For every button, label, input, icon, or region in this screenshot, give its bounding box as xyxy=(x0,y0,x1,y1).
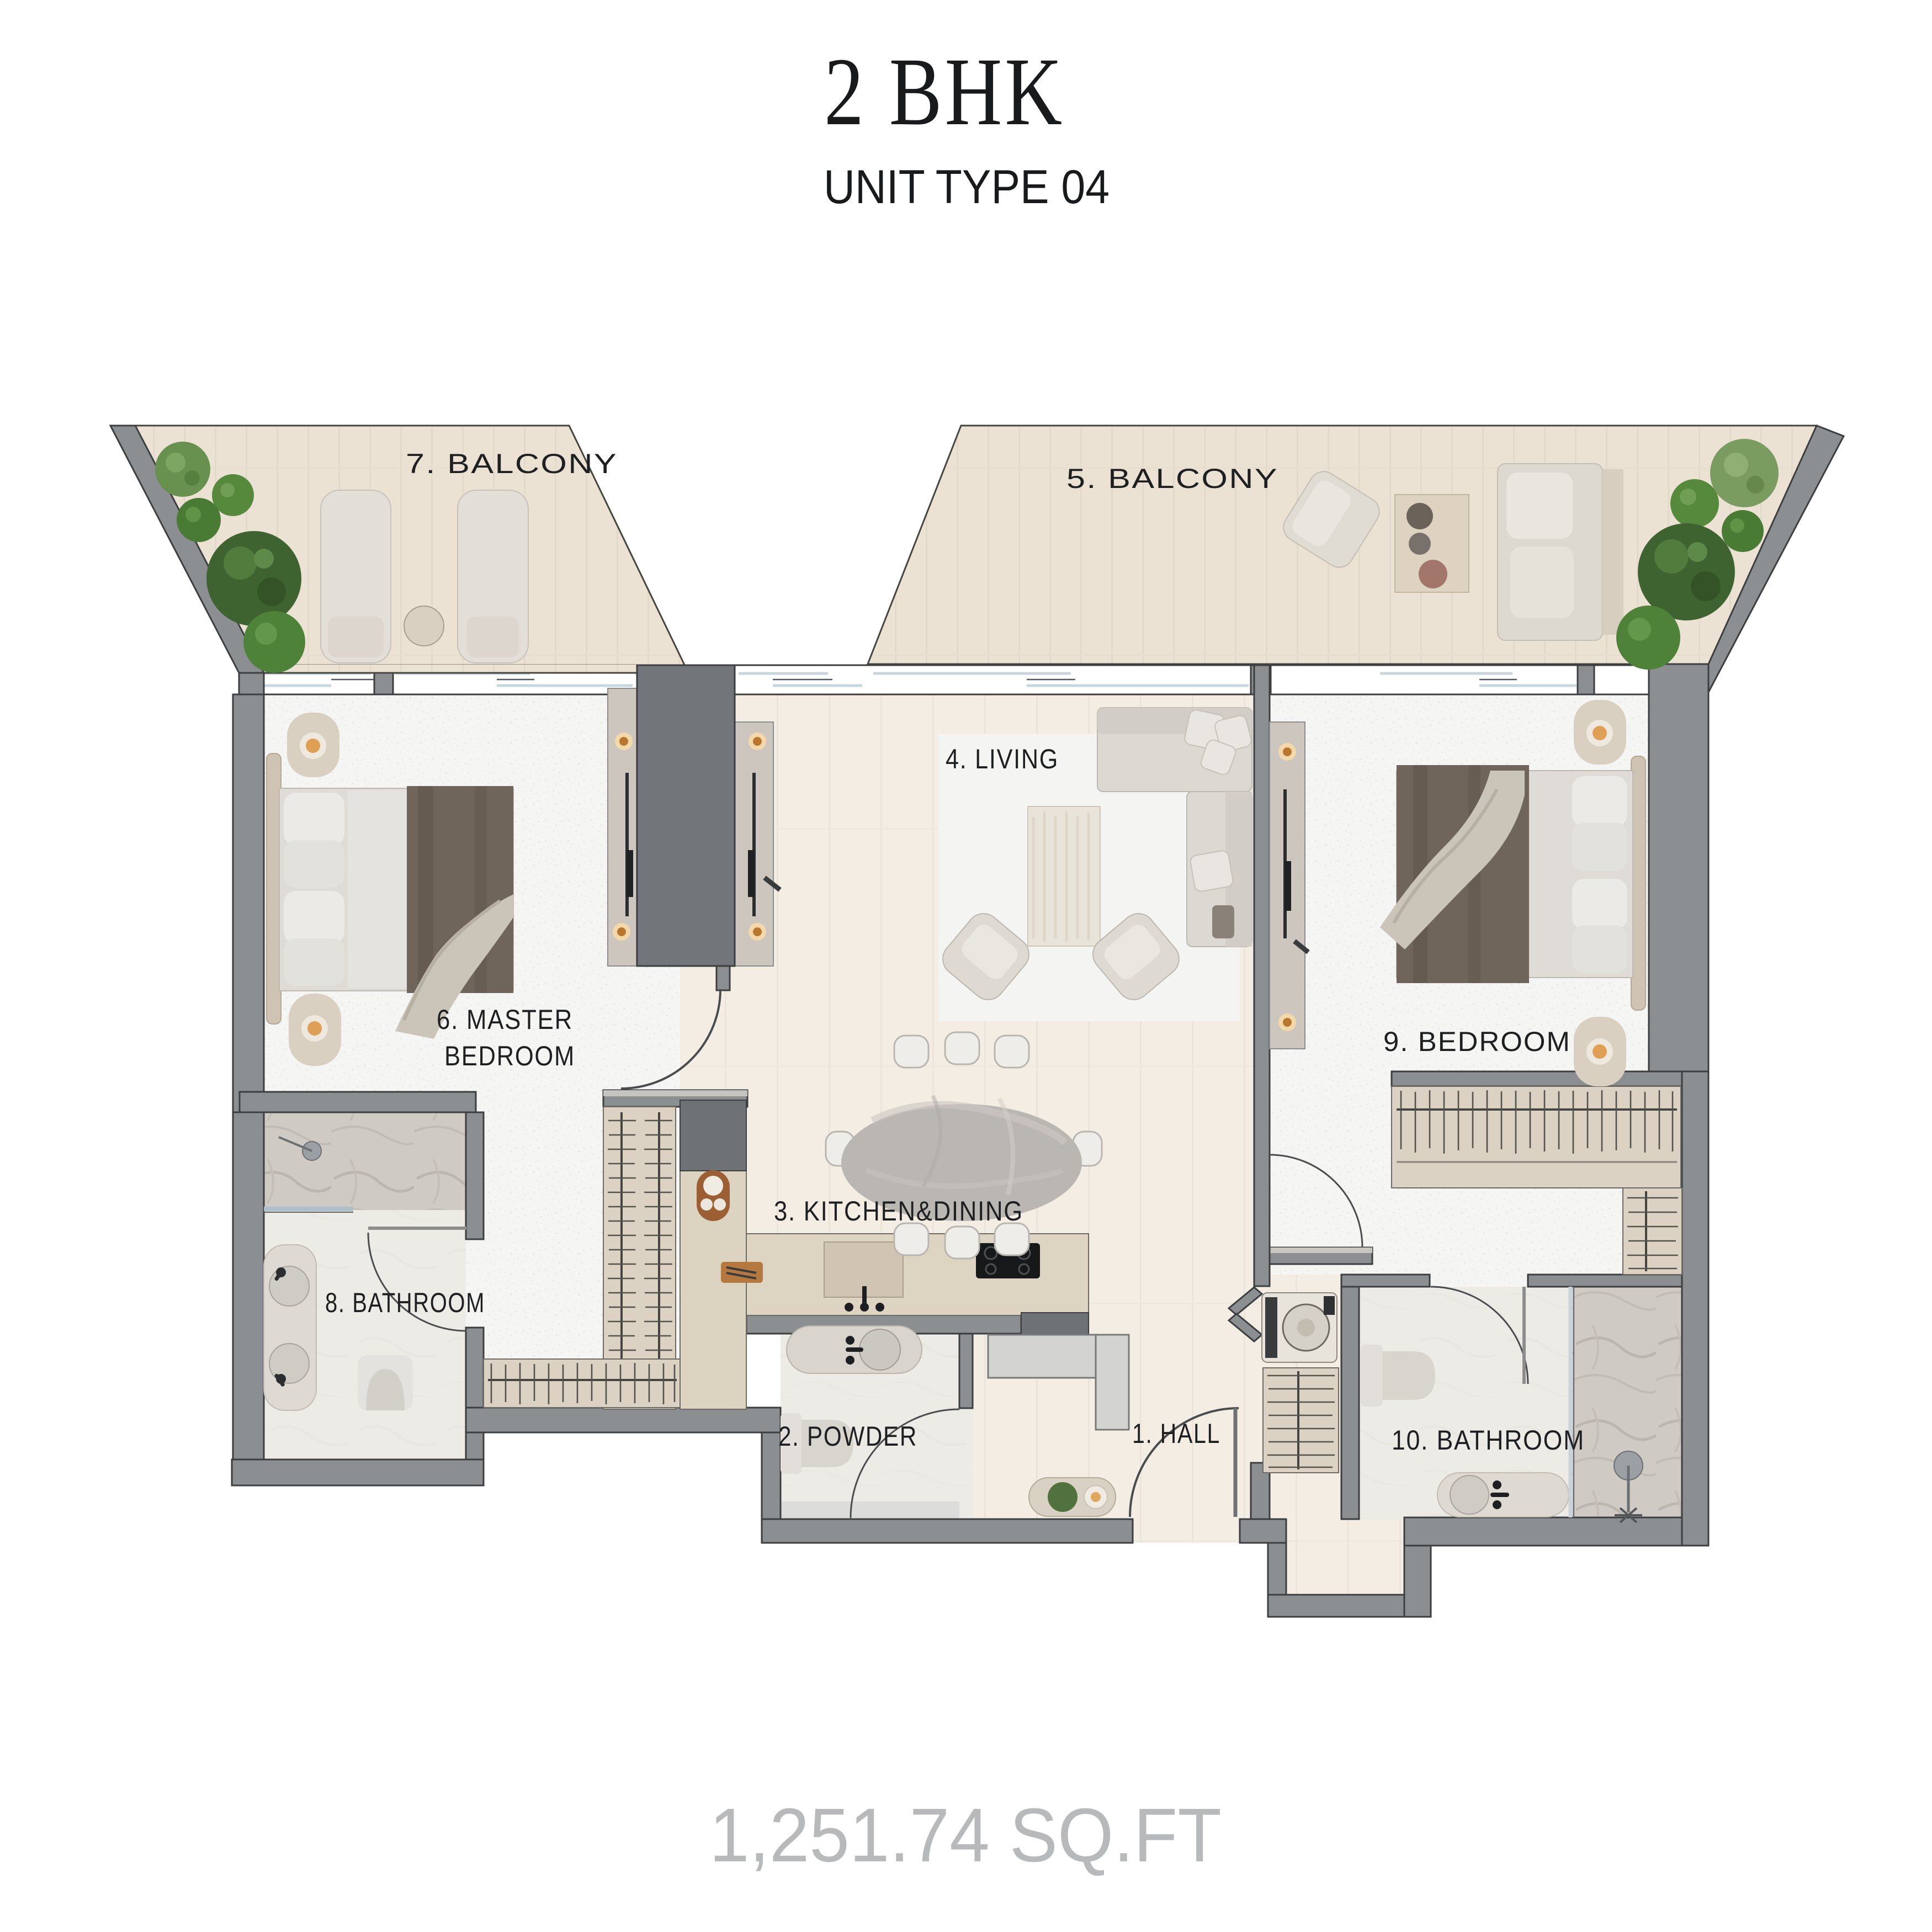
svg-text:8. BATHROOM: 8. BATHROOM xyxy=(325,1287,485,1318)
svg-text:2 BHK: 2 BHK xyxy=(824,38,1065,146)
svg-text:BEDROOM: BEDROOM xyxy=(444,1041,575,1071)
svg-text:9. BEDROOM: 9. BEDROOM xyxy=(1383,1026,1571,1057)
svg-text:1,251.74 SQ.FT: 1,251.74 SQ.FT xyxy=(709,1793,1222,1878)
svg-text:UNIT TYPE 04: UNIT TYPE 04 xyxy=(824,161,1110,214)
svg-text:3. KITCHEN&DINING: 3. KITCHEN&DINING xyxy=(774,1196,1023,1227)
svg-text:5. BALCONY: 5. BALCONY xyxy=(1066,463,1278,494)
svg-text:6. MASTER: 6. MASTER xyxy=(437,1004,573,1035)
svg-text:1. HALL: 1. HALL xyxy=(1132,1418,1220,1449)
svg-text:10. BATHROOM: 10. BATHROOM xyxy=(1392,1425,1585,1456)
svg-text:2. POWDER: 2. POWDER xyxy=(778,1421,917,1452)
svg-text:4. LIVING: 4. LIVING xyxy=(946,744,1059,774)
svg-text:7. BALCONY: 7. BALCONY xyxy=(406,448,618,479)
